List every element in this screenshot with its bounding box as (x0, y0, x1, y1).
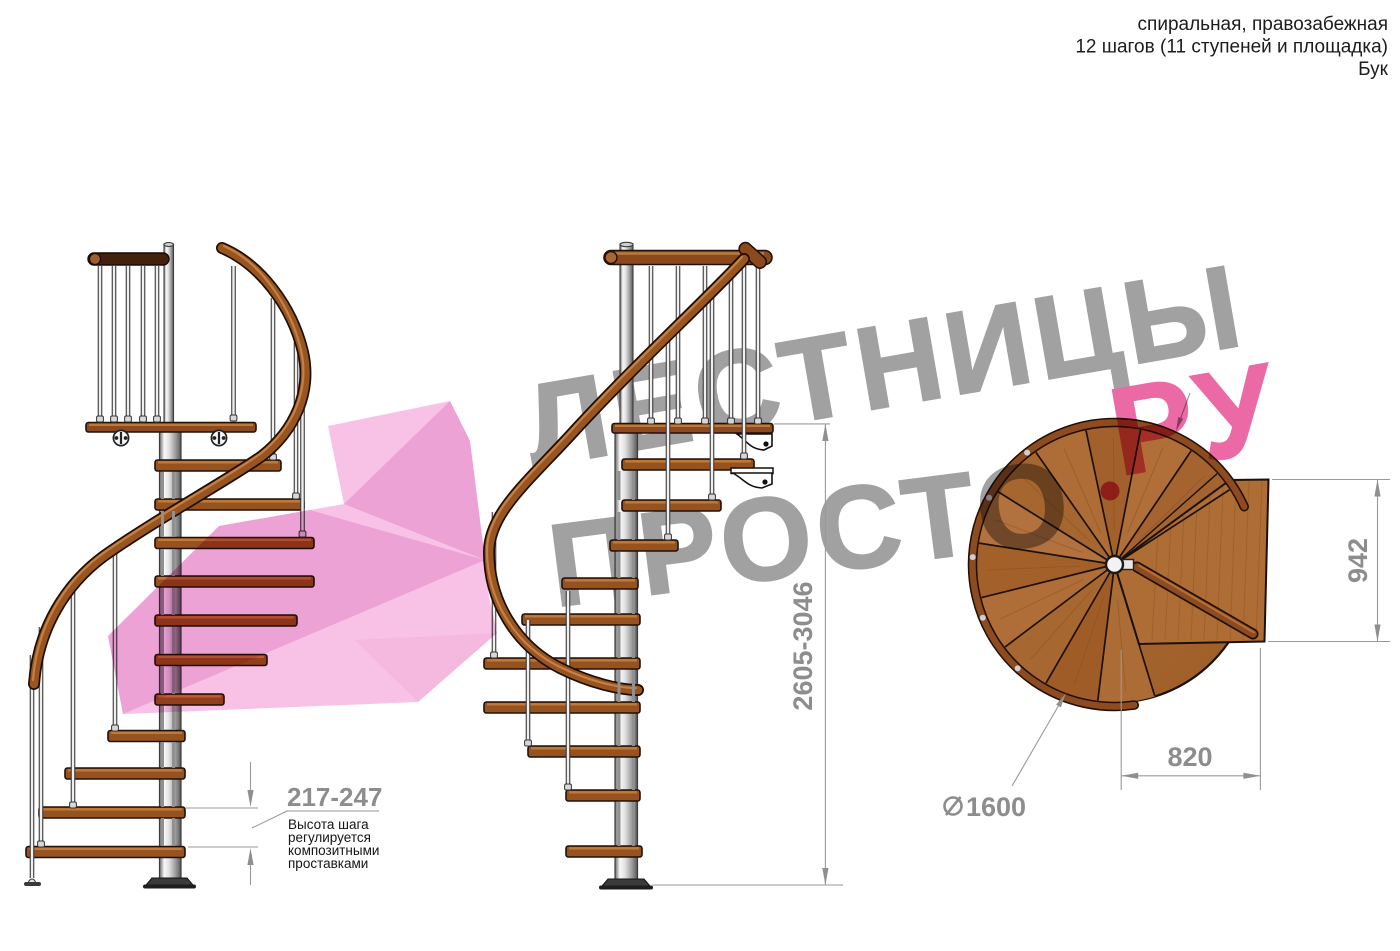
svg-text:2605-3046: 2605-3046 (788, 581, 818, 710)
svg-text:спиральная, правозабежная: спиральная, правозабежная (1138, 14, 1388, 35)
svg-text:942: 942 (1343, 538, 1373, 583)
svg-text:217-247: 217-247 (287, 782, 382, 812)
svg-text:Бук: Бук (1358, 59, 1389, 80)
svg-text:проставками: проставками (288, 856, 368, 871)
svg-text:12 шагов (11 ступеней и площад: 12 шагов (11 ступеней и площадка) (1075, 37, 1388, 58)
svg-text:1600: 1600 (966, 792, 1026, 822)
svg-text:820: 820 (1167, 742, 1212, 772)
svg-text:РУ: РУ (1100, 337, 1291, 503)
